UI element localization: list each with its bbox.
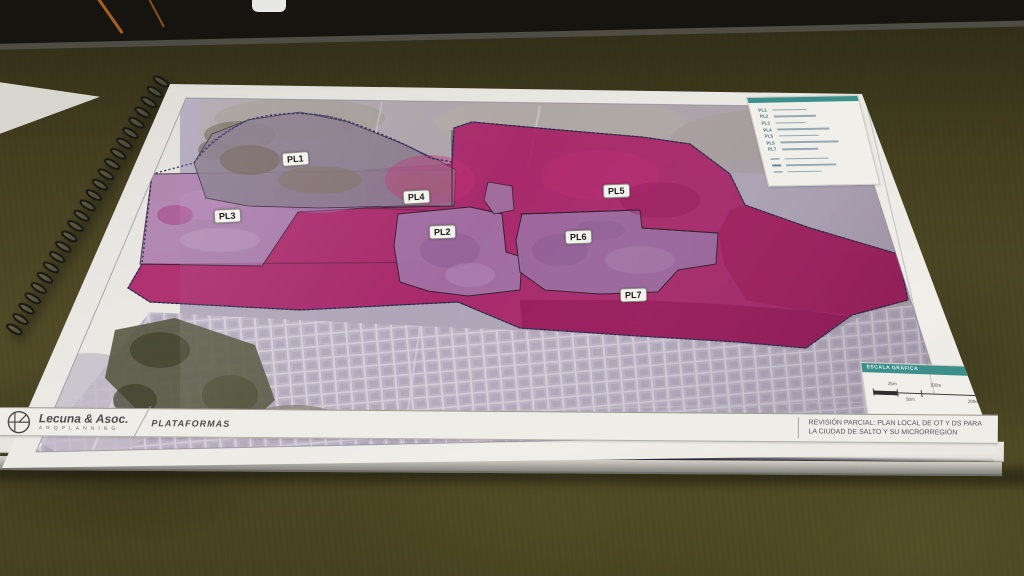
legend-code: PL4	[763, 127, 776, 132]
legend-text-line	[777, 128, 829, 130]
legend-code: PL7	[768, 147, 781, 152]
cell-divider	[131, 406, 150, 440]
zone-label-pl4: PL4	[403, 189, 430, 204]
zone-label-pl5: PL5	[603, 184, 630, 199]
zone-label-pl7: PL7	[620, 288, 647, 303]
legend-code: PL3	[761, 121, 774, 126]
legend-code: PL5	[764, 134, 777, 139]
legend-text-line	[779, 135, 819, 137]
graphic-scale-bar: 25m 100m 50m 200m	[872, 382, 987, 406]
background-object	[252, 0, 286, 12]
legend-text-line	[772, 108, 806, 110]
company-brand: Lecuna & Asoc. ARQPLANNING	[39, 412, 129, 433]
zone-label-pl6: PL6	[565, 230, 592, 245]
legend-symbol-row	[773, 167, 871, 175]
legend-text-line	[775, 122, 805, 124]
legend-code: PL6	[766, 140, 779, 145]
legend-line-symbol	[770, 158, 779, 160]
arqplanning-logo-icon	[6, 409, 32, 435]
legend-code: PL1	[758, 107, 771, 112]
legend-panel: PL1 PL2 PL3 PL4 PL5 PL6 PL7	[746, 95, 880, 187]
scale-label-25m: 25m	[888, 381, 897, 386]
zone-label-pl3: PL3	[214, 208, 241, 223]
photo-of-plan-document: PL1 PL3 PL4 PL2 PL5 PL6 PL7 PL1 PL2 PL3 …	[0, 0, 1024, 576]
company-subtitle: ARQPLANNING	[39, 425, 129, 433]
legend-text-line	[780, 141, 838, 144]
legend-text-line	[788, 171, 822, 173]
legend-code: PL2	[759, 114, 772, 119]
legend-text-line	[786, 164, 836, 166]
sheet-name: PLATAFORMAS	[151, 418, 230, 429]
zone-label-pl2: PL2	[429, 225, 456, 240]
project-title-line2: LA CIUDAD DE SALTO Y SU MICRORREGIÓN	[808, 428, 981, 438]
scale-label-50m: 50m	[906, 397, 915, 402]
legend-text-line	[774, 115, 816, 117]
company-name: Lecuna & Asoc.	[39, 412, 129, 425]
legend-text-line	[784, 157, 828, 159]
zone-label-pl1: PL1	[282, 151, 309, 167]
legend-text-line	[782, 148, 818, 150]
legend-line-symbol	[772, 165, 781, 167]
legend-line-symbol	[774, 171, 783, 173]
project-title-block: REVISIÓN PARCIAL: PLAN LOCAL DE OT Y DS …	[797, 417, 994, 440]
